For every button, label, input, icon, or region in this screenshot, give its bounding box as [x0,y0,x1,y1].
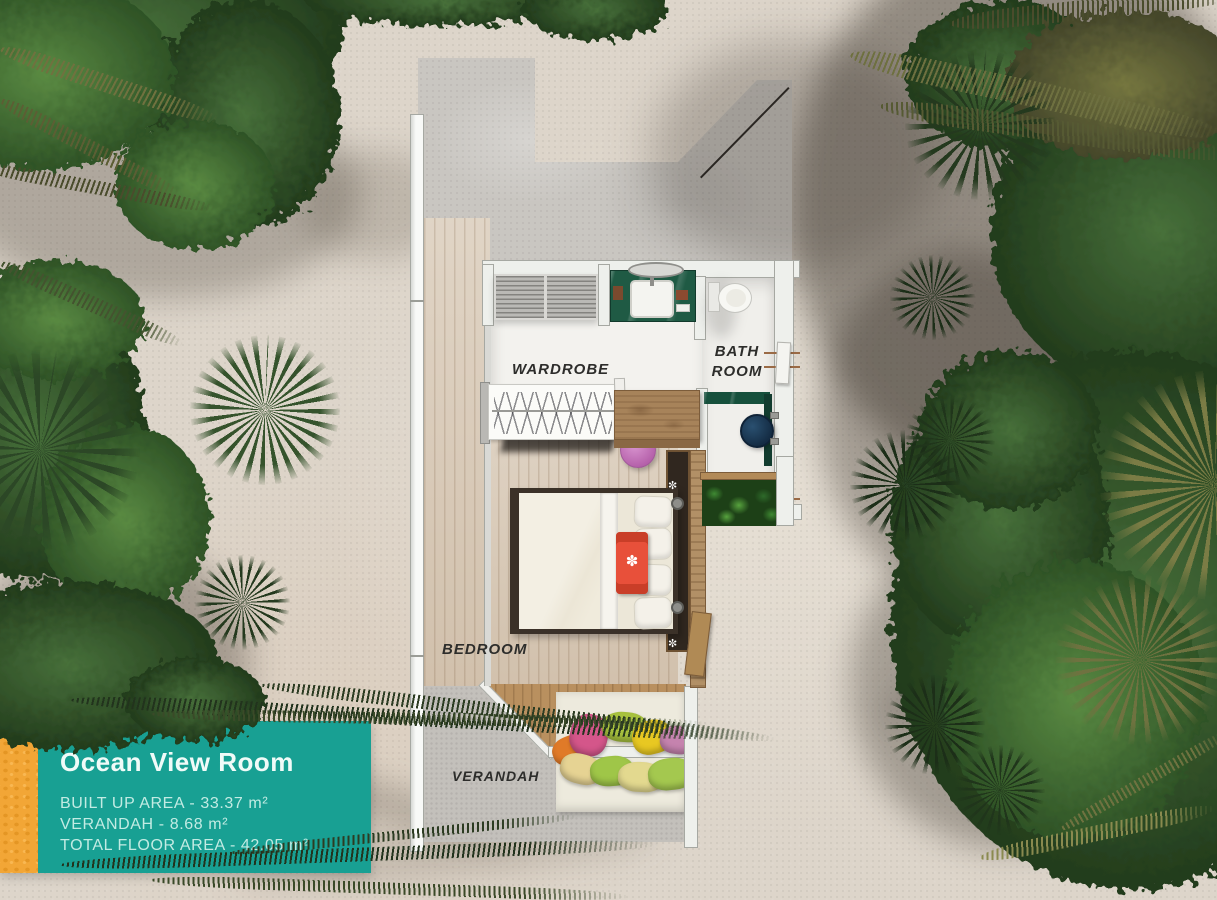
wall-joint [410,655,424,657]
floor-plan-render: ✽ ✼ ✼ WARDROBE BATH ROOM BEDROOM VERANDA… [0,0,1217,900]
vanity-accessory [613,286,623,300]
card-spec-verandah: VERANDAH - 8.68 m² [60,814,228,835]
shower-fixture [770,412,779,419]
wood-floor-corridor [424,218,490,688]
bathroom-label-line1: BATH [700,342,774,362]
wardrobe-label: WARDROBE [512,361,609,378]
bathroom-door [775,342,791,385]
bathroom-label-line2: ROOM [700,362,774,382]
bedside-lamp [671,601,684,614]
verandah-label: VERANDAH [452,768,539,784]
fan-palm [190,335,340,485]
bathroom-label: BATH ROOM [700,342,774,382]
wardrobe-rail [492,410,614,412]
bedside-lamp [671,497,684,510]
shower-fixture [770,438,779,445]
verandah-right-wall [684,686,698,848]
fan-palm [0,350,140,550]
louver-divider [544,274,547,320]
desk-side [614,440,700,448]
vanity-accessory [676,290,688,300]
boundary-wall-left [410,114,424,852]
bed-pillow [633,596,672,629]
louver-end-cap [598,264,610,326]
wardrobe-hangers [494,392,612,434]
spiky-plant [905,395,995,485]
olive-fan-palm [1055,575,1217,745]
desk [614,390,700,440]
sparkle-icon: ✼ [668,638,682,650]
planter [702,480,784,526]
wall-joint [410,300,424,302]
marble-half-wall [704,392,770,404]
bed-sheet [519,493,605,629]
bed-pillow [633,495,672,528]
card-accent-stripe [0,721,38,873]
soap-dish [676,304,690,312]
louver-end-cap [482,264,494,326]
card-spec-built-up: BUILT UP AREA - 33.37 m² [60,793,268,814]
flower-motif-icon: ✽ [622,552,642,572]
spiky-plant [955,745,1045,835]
bedroom-label: BEDROOM [442,641,527,658]
sparkle-icon: ✼ [668,480,682,492]
room-left-wall [484,276,491,686]
card-title: Ocean View Room [60,747,294,778]
toilet-seat [726,289,746,307]
spiky-plant [195,555,290,650]
spiky-plant [890,255,975,340]
shower-basin [740,414,774,448]
planter-outer-wall [776,456,794,526]
round-mirror [628,262,684,278]
